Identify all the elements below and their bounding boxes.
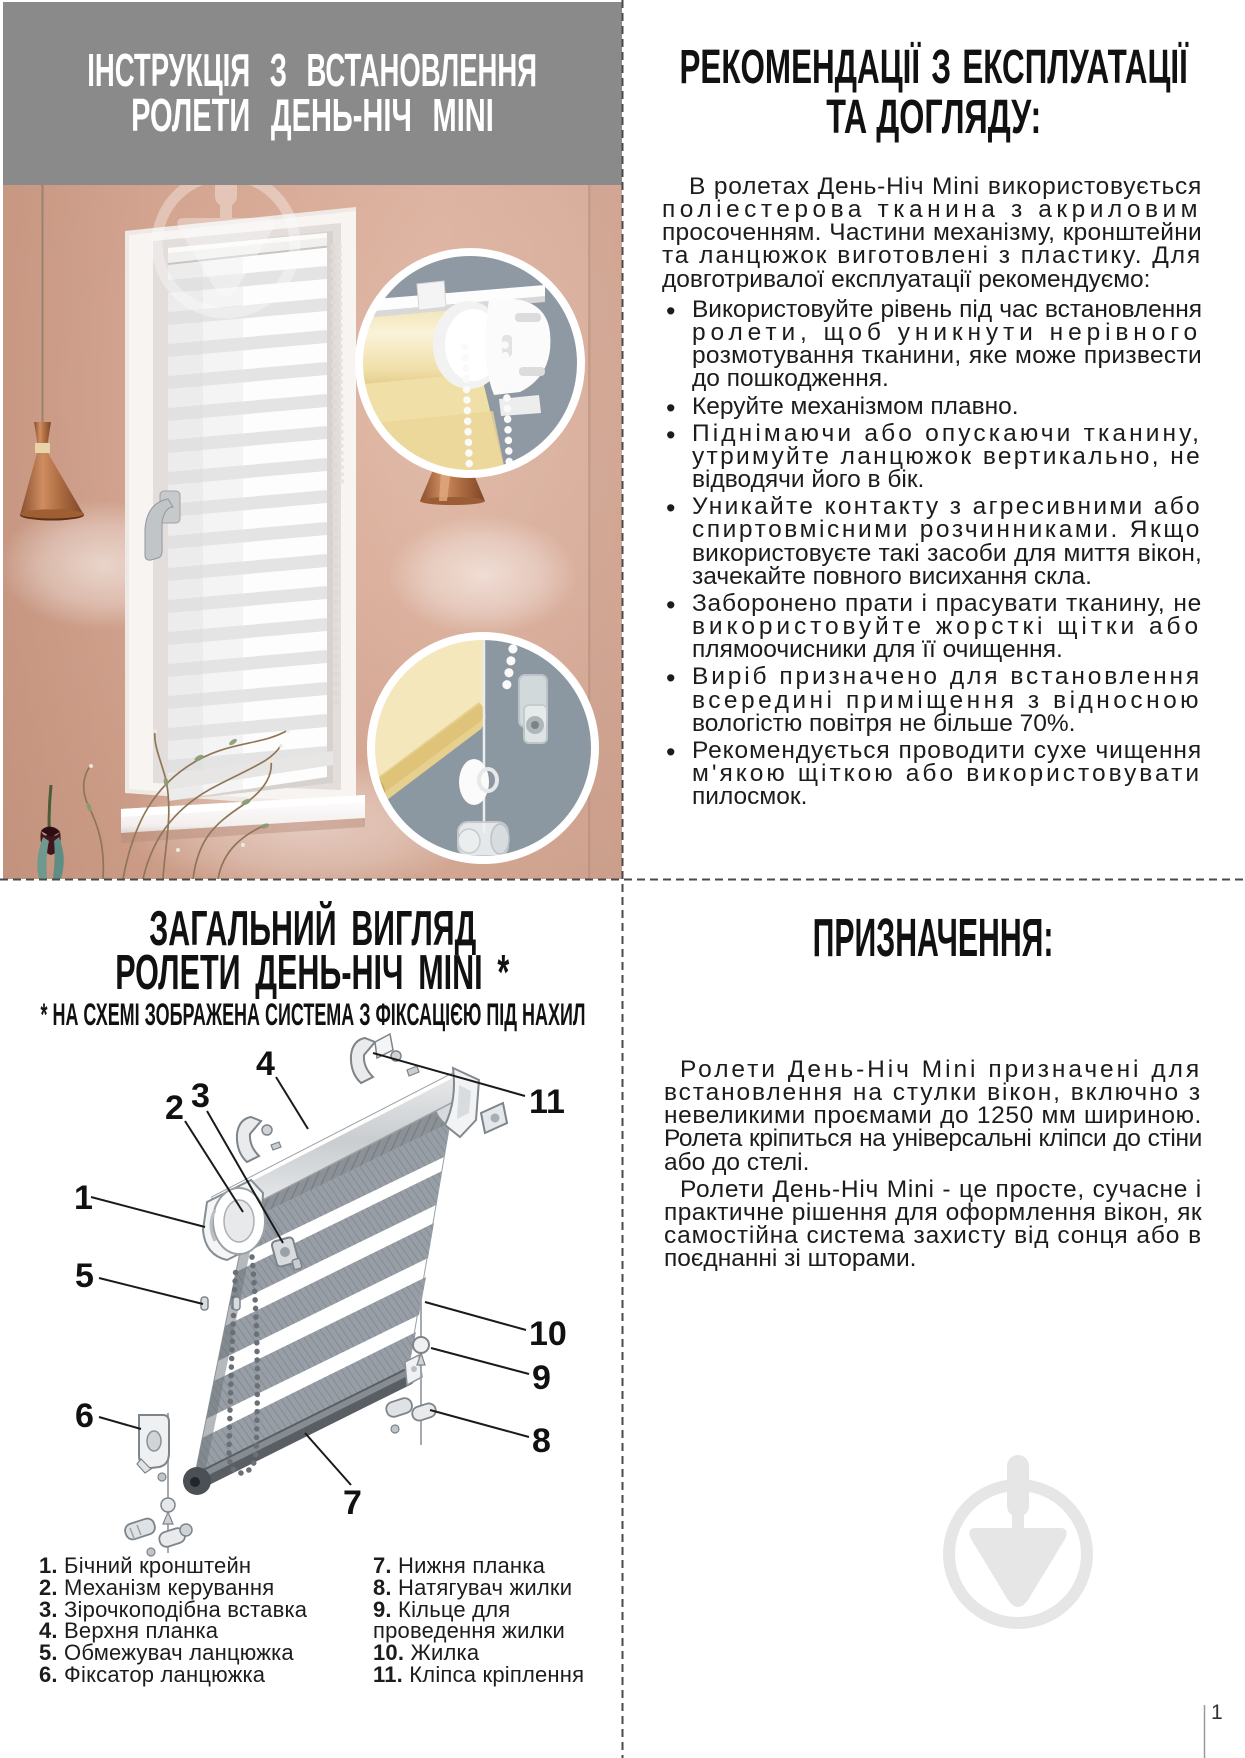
svg-text:9: 9 [532, 1359, 551, 1397]
svg-text:11: 11 [529, 1083, 565, 1121]
svg-text:5: 5 [75, 1257, 94, 1295]
svg-text:7: 7 [343, 1484, 362, 1522]
svg-text:2: 2 [165, 1089, 184, 1127]
svg-text:6: 6 [75, 1397, 94, 1435]
svg-text:8: 8 [532, 1422, 551, 1460]
svg-text:1: 1 [74, 1179, 93, 1217]
svg-text:10: 10 [529, 1315, 567, 1353]
svg-text:3: 3 [191, 1077, 210, 1115]
svg-text:4: 4 [256, 1045, 275, 1083]
